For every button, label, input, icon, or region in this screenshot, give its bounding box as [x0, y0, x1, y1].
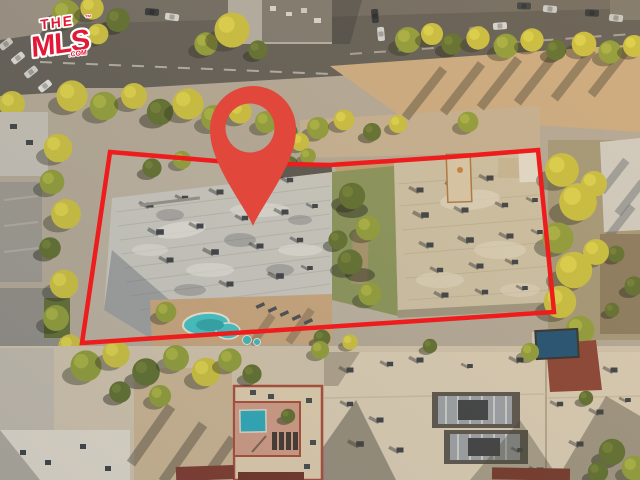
mls-watermark: THE ™ MLS .COM	[0, 0, 120, 70]
property-boundary	[82, 150, 554, 343]
mls-logo-tm: ™	[85, 14, 92, 22]
mls-logo-com: .COM	[69, 49, 88, 59]
mls-logo-mls: MLS	[31, 24, 91, 64]
annotation-overlay	[0, 0, 640, 480]
map-pin-icon	[210, 86, 296, 226]
aerial-photo: THE ™ MLS .COM	[0, 0, 640, 480]
